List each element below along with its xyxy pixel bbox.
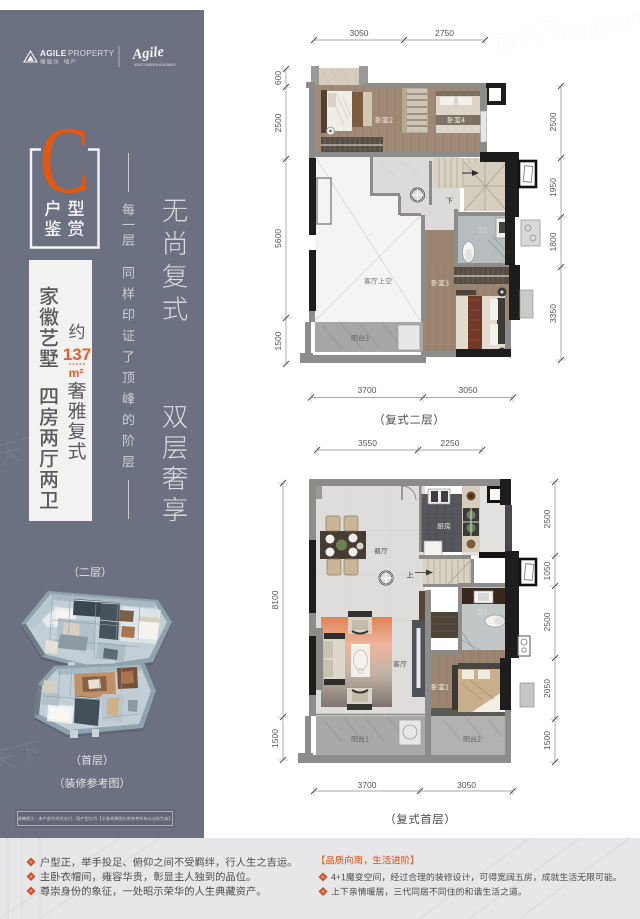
svg-text:2250: 2250	[441, 438, 460, 448]
svg-text:2500: 2500	[542, 509, 552, 528]
svg-text:1500: 1500	[542, 731, 552, 750]
svg-text:2500: 2500	[542, 612, 552, 631]
svg-text:1050: 1050	[542, 561, 552, 580]
svg-text:3550: 3550	[358, 438, 377, 448]
svg-text:3050: 3050	[457, 780, 476, 790]
svg-text:8100: 8100	[270, 590, 280, 609]
svg-text:1500: 1500	[270, 729, 280, 748]
svg-text:3700: 3700	[358, 780, 377, 790]
svg-text:2050: 2050	[542, 679, 552, 698]
